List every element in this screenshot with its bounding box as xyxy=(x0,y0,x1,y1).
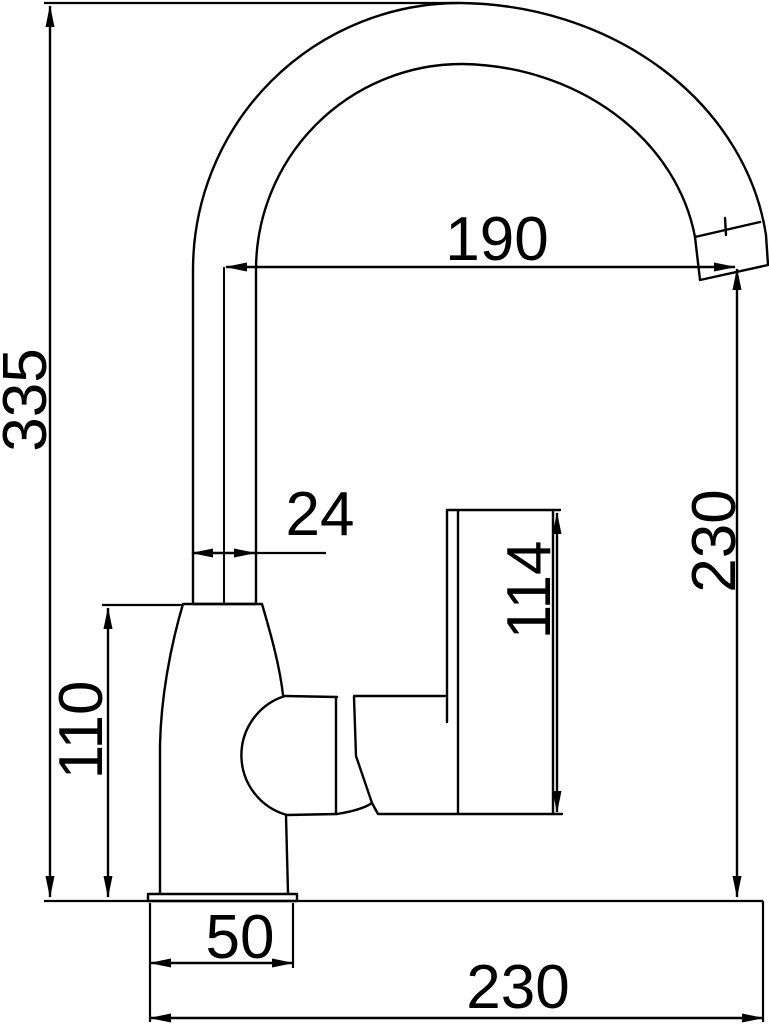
extension-lines xyxy=(44,3,763,1022)
handle-socket-left-edge xyxy=(354,697,372,803)
dimension-lines xyxy=(50,6,763,1018)
dim-label-outlet-height: 230 xyxy=(680,489,749,592)
handle-bottom-edge xyxy=(287,803,562,815)
body-outline xyxy=(160,604,283,893)
ball-joint-top-edge xyxy=(285,696,337,697)
dim-label-overall-height: 335 xyxy=(0,348,60,451)
dim-label-spout-reach: 190 xyxy=(445,205,548,274)
faucet-dimension-drawing: 335 110 190 24 114 230 50 230 xyxy=(0,0,769,1024)
dim-label-spout-tube-width: 24 xyxy=(286,480,355,549)
dim-label-body-height: 110 xyxy=(47,681,116,780)
drawing-svg: 335 110 190 24 114 230 50 230 xyxy=(0,0,769,1024)
dim-label-base-width: 50 xyxy=(206,903,275,972)
faucet-outline xyxy=(148,3,768,901)
dimension-labels: 335 110 190 24 114 230 50 230 xyxy=(0,205,749,1022)
spout-aerator-seam-tick xyxy=(725,218,726,235)
body-lower-right-edge xyxy=(286,816,288,893)
dim-label-overall-depth: 230 xyxy=(466,953,569,1022)
ball-joint-arc xyxy=(241,696,287,815)
dim-label-handle-length: 114 xyxy=(495,541,564,640)
